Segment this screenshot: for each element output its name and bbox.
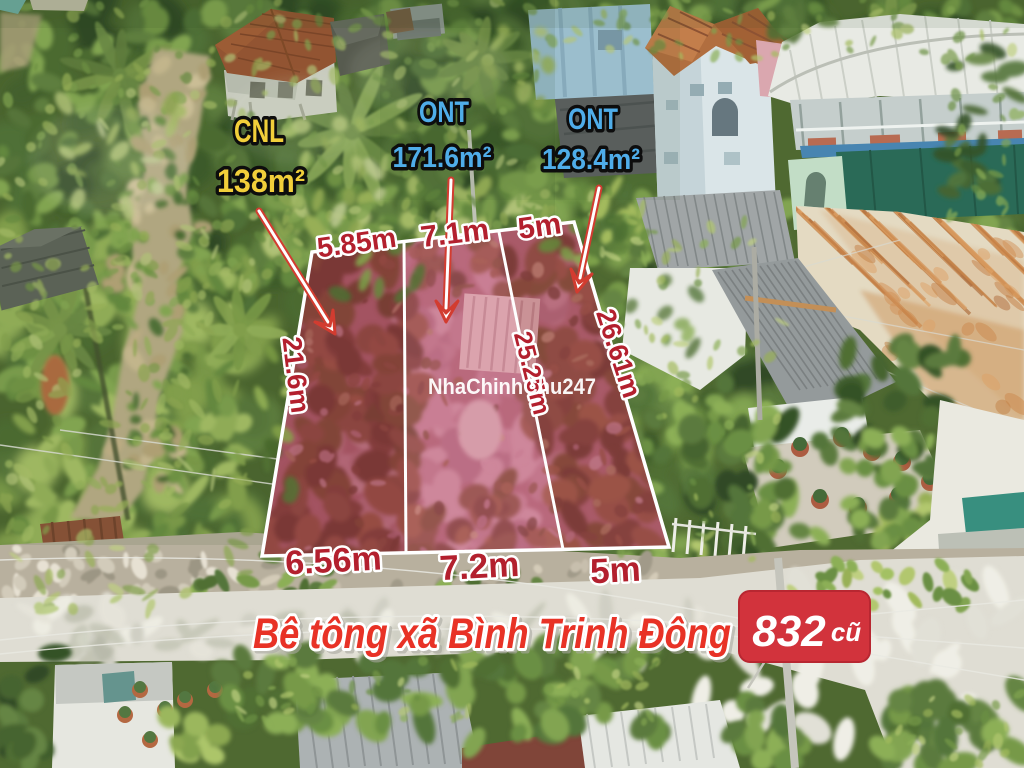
svg-text:ONT: ONT <box>419 96 469 129</box>
svg-text:832: 832 <box>752 607 826 656</box>
svg-text:5m: 5m <box>589 550 642 592</box>
svg-text:6.56m: 6.56m <box>284 540 382 583</box>
svg-text:128.4m²: 128.4m² <box>542 144 640 176</box>
svg-text:CNL: CNL <box>234 113 284 149</box>
svg-text:NhaChinhChu247: NhaChinhChu247 <box>428 374 596 399</box>
svg-text:cũ: cũ <box>831 617 861 647</box>
svg-text:5m: 5m <box>516 207 564 246</box>
svg-text:7.2m: 7.2m <box>439 545 521 588</box>
svg-text:138m²: 138m² <box>217 163 305 199</box>
svg-text:171.6m²: 171.6m² <box>393 142 492 174</box>
svg-text:Bê tông xã Bình Trinh Đông: Bê tông xã Bình Trinh Đông <box>253 610 731 658</box>
svg-text:ONT: ONT <box>568 103 618 136</box>
